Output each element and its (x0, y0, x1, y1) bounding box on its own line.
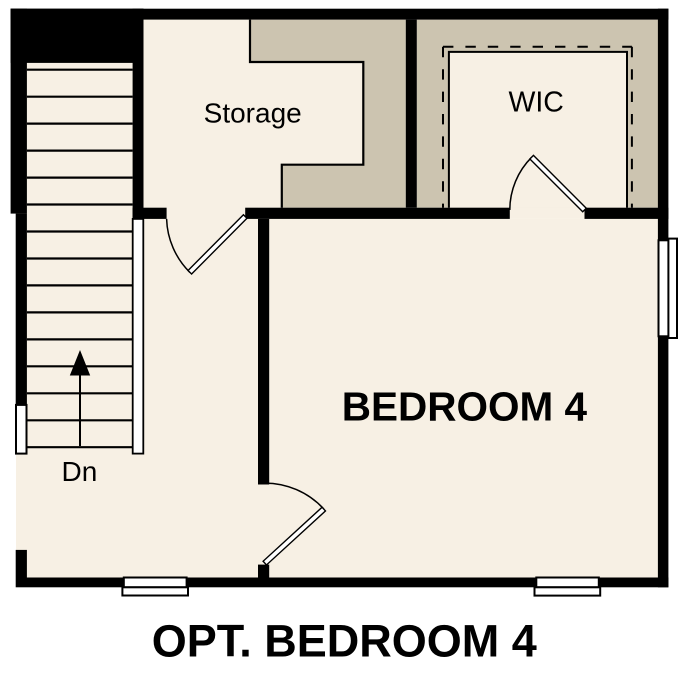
svg-text:BEDROOM 4: BEDROOM 4 (342, 384, 588, 430)
svg-text:Storage: Storage (204, 97, 302, 128)
svg-text:WIC: WIC (508, 86, 563, 118)
svg-text:Dn: Dn (62, 456, 98, 487)
svg-text:OPT. BEDROOM 4: OPT. BEDROOM 4 (152, 616, 537, 667)
